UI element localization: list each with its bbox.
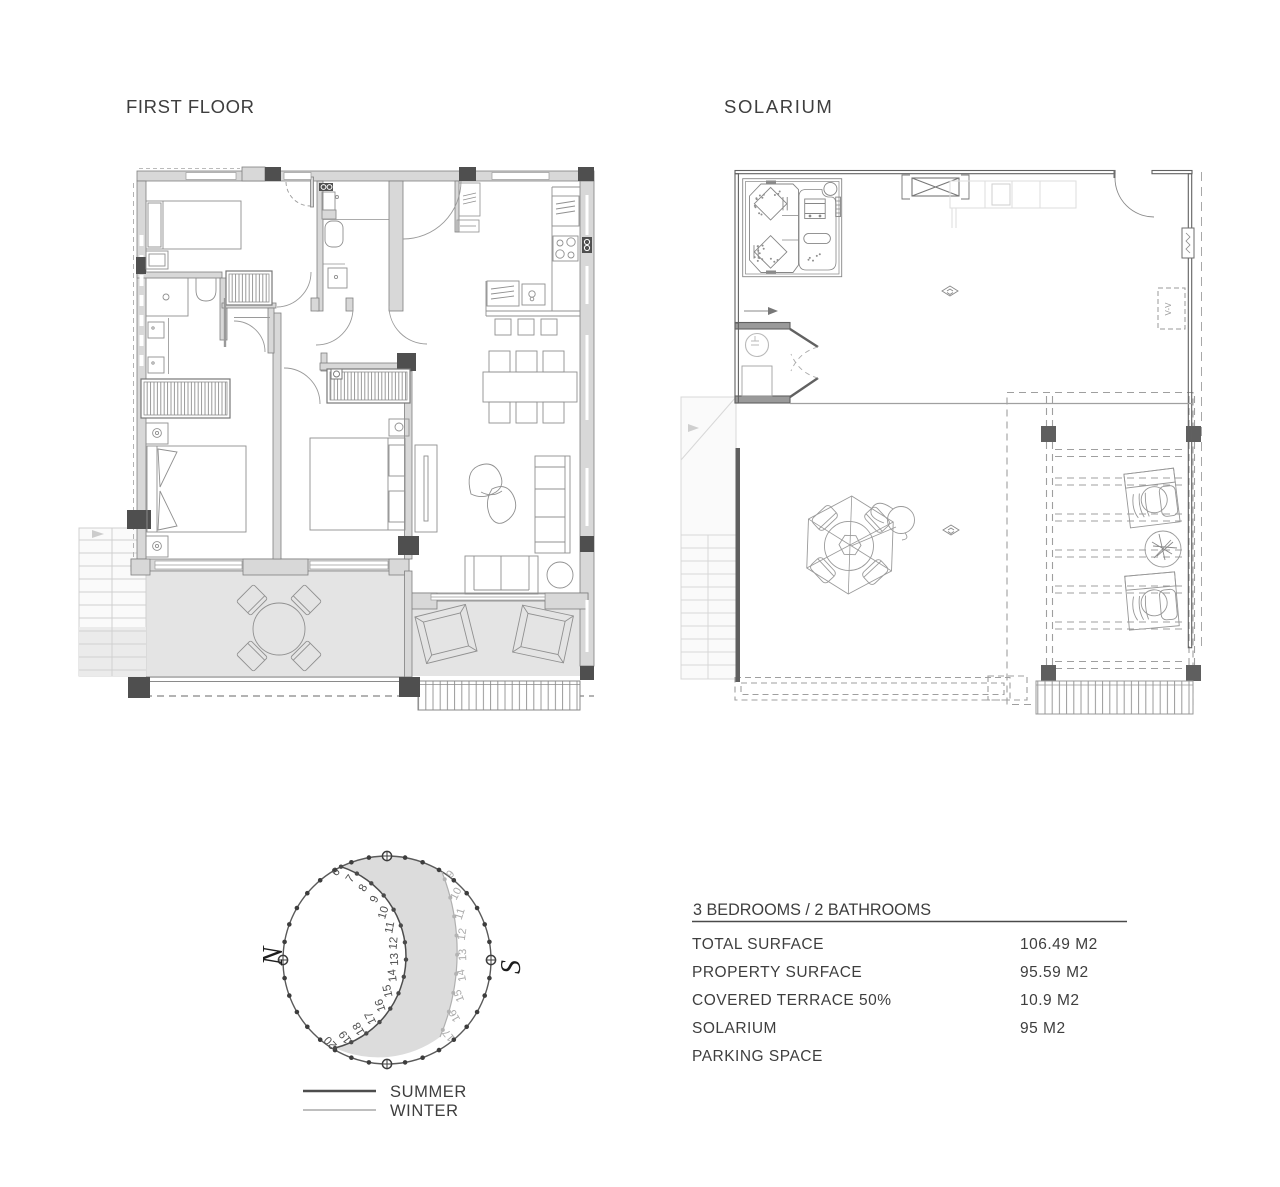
svg-text:16: 16 bbox=[373, 997, 389, 1013]
svg-text:12: 12 bbox=[387, 936, 400, 950]
svg-text:V-V: V-V bbox=[1164, 302, 1173, 316]
svg-text:14: 14 bbox=[386, 968, 400, 983]
svg-text:106.49 M2: 106.49 M2 bbox=[1020, 936, 1098, 953]
svg-text:COVERED TERRACE 50%: COVERED TERRACE 50% bbox=[692, 992, 892, 1009]
svg-text:FIRST FLOOR: FIRST FLOOR bbox=[126, 96, 255, 117]
svg-text:95 M2: 95 M2 bbox=[1020, 1020, 1066, 1037]
svg-text:13: 13 bbox=[389, 953, 401, 966]
svg-text:PROPERTY SURFACE: PROPERTY SURFACE bbox=[692, 964, 862, 981]
svg-text:N: N bbox=[258, 945, 289, 966]
svg-text:8: 8 bbox=[357, 882, 371, 893]
svg-text:95.59 M2: 95.59 M2 bbox=[1020, 964, 1089, 981]
svg-text:PARKING SPACE: PARKING SPACE bbox=[692, 1048, 823, 1065]
svg-text:12: 12 bbox=[456, 927, 470, 941]
svg-text:WINTER: WINTER bbox=[390, 1102, 459, 1120]
svg-text:11: 11 bbox=[453, 907, 468, 922]
svg-text:9: 9 bbox=[368, 894, 382, 905]
svg-text:TOTAL SURFACE: TOTAL SURFACE bbox=[692, 936, 824, 953]
svg-text:S: S bbox=[496, 960, 527, 974]
svg-text:SOLARIUM: SOLARIUM bbox=[724, 96, 833, 117]
svg-text:15: 15 bbox=[381, 983, 396, 998]
svg-text:SOLARIUM: SOLARIUM bbox=[692, 1020, 777, 1037]
svg-text:14: 14 bbox=[455, 968, 469, 982]
svg-text:3 BEDROOMS / 2 BATHROOMS: 3 BEDROOMS / 2 BATHROOMS bbox=[693, 901, 931, 919]
svg-text:SUMMER: SUMMER bbox=[390, 1083, 467, 1101]
svg-text:10.9 M2: 10.9 M2 bbox=[1020, 992, 1080, 1009]
svg-text:13: 13 bbox=[457, 949, 469, 962]
svg-text:10: 10 bbox=[376, 905, 391, 921]
svg-text:11: 11 bbox=[383, 921, 397, 935]
